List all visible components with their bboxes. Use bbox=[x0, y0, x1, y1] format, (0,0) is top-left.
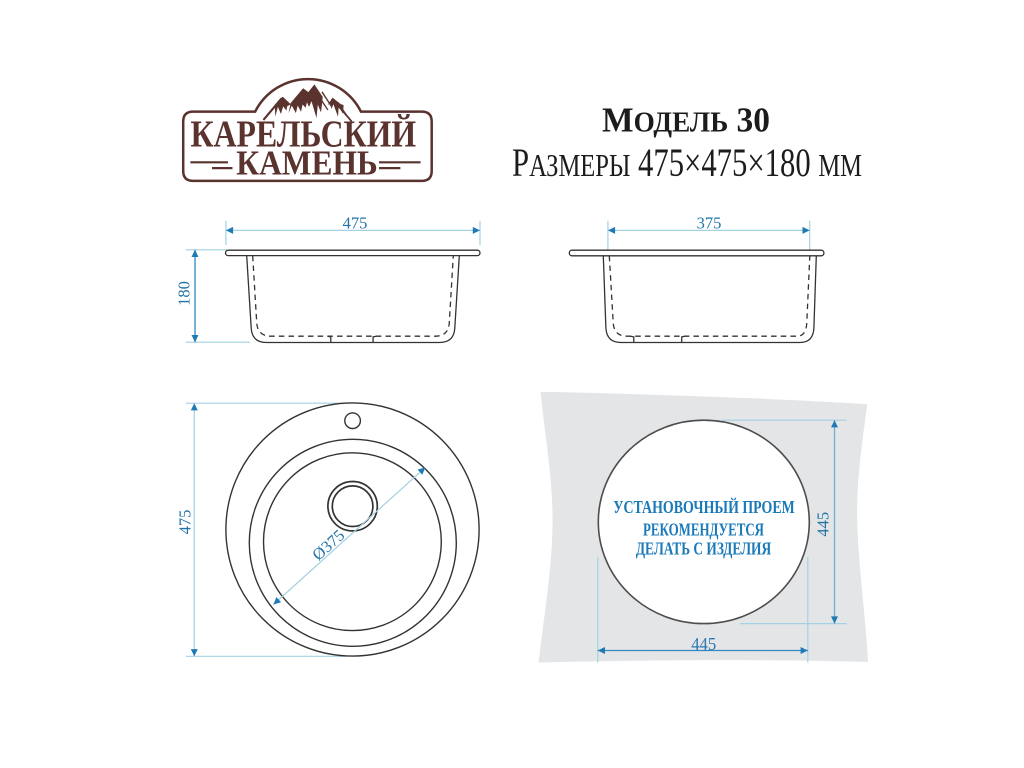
svg-text:РЕКОМЕНДУЕТСЯ: РЕКОМЕНДУЕТСЯ bbox=[643, 519, 764, 539]
svg-text:ДЕЛАТЬ С ИЗДЕЛИЯ: ДЕЛАТЬ С ИЗДЕЛИЯ bbox=[636, 539, 772, 559]
svg-text:УСТАНОВОЧНЫЙ ПРОЕМ: УСТАНОВОЧНЫЙ ПРОЕМ bbox=[613, 497, 795, 517]
svg-text:180: 180 bbox=[175, 281, 194, 306]
svg-text:РАЗМЕРЫ 475×475×180 ММ: РАЗМЕРЫ 475×475×180 ММ bbox=[512, 140, 862, 185]
svg-text:445: 445 bbox=[813, 512, 832, 537]
svg-text:475: 475 bbox=[176, 510, 195, 535]
svg-text:КАМЕНЬ: КАМЕНЬ bbox=[236, 144, 377, 183]
svg-text:375: 375 bbox=[697, 214, 722, 233]
svg-text:445: 445 bbox=[691, 634, 716, 654]
svg-text:475: 475 bbox=[343, 214, 368, 233]
